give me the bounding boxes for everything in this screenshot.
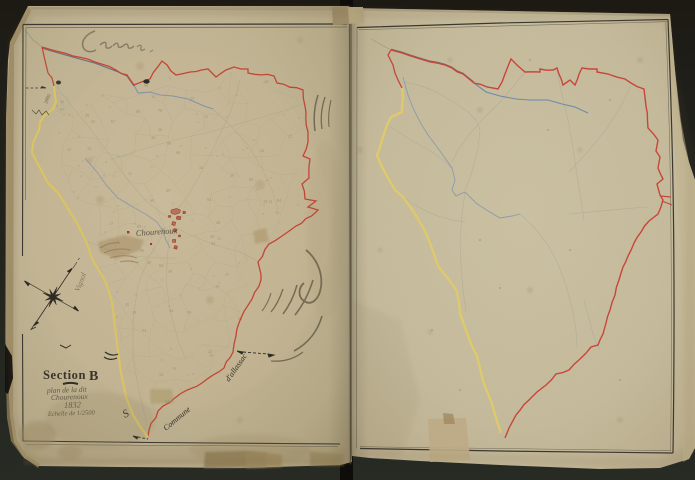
svg-text:13: 13 <box>275 210 279 215</box>
svg-text:85: 85 <box>137 224 141 229</box>
svg-text:67: 67 <box>111 119 115 124</box>
svg-text:39: 39 <box>85 113 89 118</box>
svg-text:40: 40 <box>216 220 220 225</box>
svg-text:49: 49 <box>210 234 214 239</box>
svg-text:Section: Section <box>43 368 86 382</box>
svg-text:11: 11 <box>204 114 208 119</box>
svg-text:19: 19 <box>215 284 219 289</box>
svg-text:27: 27 <box>288 134 292 139</box>
svg-text:53: 53 <box>91 119 95 124</box>
svg-text:39: 39 <box>230 173 234 178</box>
svg-text:15: 15 <box>172 366 176 371</box>
svg-text:27: 27 <box>225 272 229 277</box>
svg-text:49: 49 <box>166 188 170 193</box>
svg-text:17: 17 <box>109 221 113 226</box>
svg-text:32: 32 <box>199 165 203 170</box>
svg-text:96: 96 <box>140 248 144 253</box>
svg-text:59: 59 <box>168 269 172 274</box>
svg-text:42: 42 <box>60 99 64 104</box>
svg-text:53: 53 <box>238 316 242 321</box>
svg-text:20: 20 <box>147 260 151 265</box>
svg-text:35: 35 <box>209 353 213 358</box>
svg-text:13: 13 <box>87 146 91 151</box>
svg-text:90: 90 <box>144 83 148 88</box>
svg-text:67: 67 <box>60 107 64 112</box>
svg-text:11: 11 <box>128 171 132 176</box>
svg-text:79: 79 <box>161 227 165 232</box>
svg-text:60: 60 <box>176 150 180 155</box>
svg-text:26: 26 <box>158 127 162 132</box>
svg-text:12: 12 <box>268 199 272 204</box>
svg-text:85: 85 <box>249 177 253 182</box>
svg-text:23: 23 <box>190 96 194 101</box>
svg-text:60: 60 <box>150 198 154 203</box>
svg-text:19: 19 <box>263 199 267 204</box>
svg-text:35: 35 <box>125 302 129 307</box>
svg-text:11: 11 <box>217 236 221 241</box>
svg-text:19: 19 <box>132 310 136 315</box>
svg-text:78: 78 <box>158 108 162 113</box>
svg-text:62: 62 <box>165 399 169 404</box>
svg-text:B: B <box>89 369 98 384</box>
svg-text:69: 69 <box>159 263 163 268</box>
svg-text:59: 59 <box>187 310 191 315</box>
svg-text:22: 22 <box>67 147 71 152</box>
svg-text:88: 88 <box>136 109 140 114</box>
svg-text:99: 99 <box>167 141 171 146</box>
